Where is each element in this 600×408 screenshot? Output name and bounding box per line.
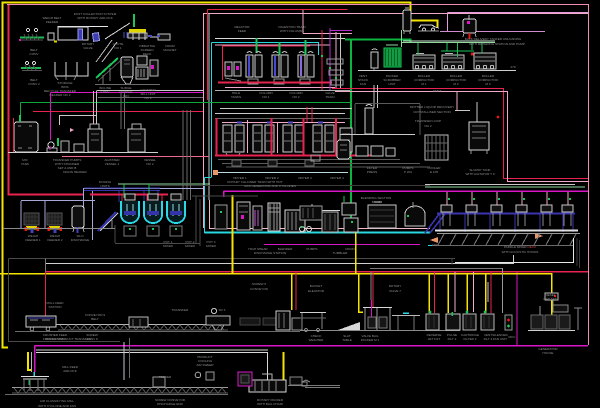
svg-text:VESSEL 1: VESSEL 1 [105,162,120,166]
svg-text:WITH ROTARY AIRLOCK: WITH ROTARY AIRLOCK [77,16,114,20]
svg-text:WEIGHER: WEIGHER [309,338,325,342]
svg-text:TABLE: TABLE [342,338,352,342]
svg-text:NO 1: NO 1 [262,95,270,99]
svg-text:FILTER 2: FILTER 2 [463,337,476,341]
svg-text:E 105: E 105 [430,170,438,174]
svg-text:VENT: VENT [433,89,441,93]
svg-text:TRANSFER LOOP: TRANSFER LOOP [415,119,441,123]
svg-text:NO 2: NO 2 [144,96,152,100]
svg-text:BULK DELIVERY TANKER UNLOADING: BULK DELIVERY TANKER UNLOADING [465,37,522,41]
svg-text:DISCHARGE: DISCHARGE [71,238,89,242]
svg-text:FILT 4: FILT 4 [484,337,493,341]
svg-text:MAGNET: MAGNET [163,48,176,52]
svg-text:WITH COLUMNS: WITH COLUMNS [280,29,304,33]
svg-text:DISCHARGE END: DISCHARGE END [157,402,184,406]
svg-text:FAN: FAN [360,82,366,86]
svg-text:NO 1: NO 1 [114,46,122,50]
svg-text:TRANSFER: TRANSFER [172,308,189,312]
svg-text:ROLL STAND: ROLL STAND [45,337,65,341]
svg-text:FEED: FEED [238,29,247,33]
svg-text:AIRLOCK: AIRLOCK [63,369,78,373]
svg-text:NO 2: NO 2 [146,162,154,166]
svg-text:BUCKET: BUCKET [310,284,323,288]
svg-text:WITH BAG CHAIR: WITH BAG CHAIR [257,402,284,406]
svg-text:WITH METERING STATION AND PUMP: WITH METERING STATION AND PUMP [469,42,525,46]
svg-text:GEN SET: GEN SET [543,297,557,301]
svg-text:TRAIN: TRAIN [325,95,334,99]
svg-text:VALVE 7: VALVE 7 [389,289,401,293]
svg-text:BINS: BINS [61,85,68,89]
svg-text:PACKER M 1: PACKER M 1 [361,338,380,342]
svg-text:MIXER: MIXER [185,244,196,248]
svg-text:BIN: BIN [123,94,128,98]
svg-text:MIXER: MIXER [206,244,217,248]
svg-text:DISCHARGE STATION: DISCHARGE STATION [254,251,286,255]
svg-text:FILT 2: FILT 2 [448,337,457,341]
svg-text:P 201: P 201 [404,170,412,174]
svg-text:BAY 2: BAY 2 [372,200,381,204]
svg-text:NO 2: NO 2 [292,95,300,99]
svg-text:HEADER NO 2: HEADER NO 2 [50,93,71,97]
svg-text:FAN UNIT: FAN UNIT [493,337,507,341]
svg-text:CONVEYOR: CONVEYOR [250,287,268,291]
svg-text:WITH CYCLONE AND FAN: WITH CYCLONE AND FAN [38,404,76,408]
svg-text:TANKS: TANKS [231,95,241,99]
svg-text:DRYER 4: DRYER 4 [330,176,344,180]
svg-text:WITH ACOUSTIC HOODS: WITH ACOUSTIC HOODS [502,250,539,254]
svg-text:HOUSE: HOUSE [542,351,553,355]
svg-text:WITH AGITATOR T 9: WITH AGITATOR T 9 [465,172,494,176]
svg-text:270: 270 [510,65,515,69]
svg-text:DECK: DECK [143,52,153,56]
svg-text:MCC: MCC [508,335,516,339]
svg-text:PUMPS: PUMPS [306,247,317,251]
svg-text:AIR SWEEP: AIR SWEEP [196,363,213,367]
svg-text:FEEDER 2: FEEDER 2 [47,238,62,242]
svg-text:FEEDER: FEEDER [46,20,59,24]
svg-text:FEEDER 1: FEEDER 1 [25,238,40,242]
svg-text:M 1: M 1 [421,82,426,86]
svg-text:SCREW 5: SCREW 5 [252,282,266,286]
svg-text:DRYER 3: DRYER 3 [298,176,312,180]
svg-text:CONV 8: CONV 8 [86,337,98,341]
svg-text:STATION: STATION [49,305,62,309]
svg-text:CRYSTALLISER SECTION: CRYSTALLISER SECTION [413,110,451,114]
svg-text:PADDLE MIXER DECK: PADDLE MIXER DECK [504,245,537,249]
svg-text:PRESS: PRESS [367,170,378,174]
svg-text:BELT: BELT [91,317,99,321]
svg-text:UNITS: UNITS [100,184,109,188]
svg-text:M 2: M 2 [453,82,458,86]
svg-text:NO 2: NO 2 [424,124,432,128]
svg-text:DRAIN HEADER: DRAIN HEADER [63,170,87,174]
svg-text:CONV 2: CONV 2 [28,82,40,86]
svg-text:VALVE: VALVE [83,46,93,50]
svg-text:GAS GENERATOR AND CYCLONES: GAS GENERATOR AND CYCLONES [244,184,296,188]
svg-text:FEEDER: FEEDER [159,375,172,379]
svg-text:TUMBLER: TUMBLER [333,251,349,255]
svg-text:CONV: CONV [101,90,111,94]
svg-text:UNIT: UNIT [388,82,395,86]
svg-text:ELEVATOR: ELEVATOR [308,289,325,293]
svg-text:M 3: M 3 [485,82,490,86]
svg-text:ROTARY: ROTARY [389,284,402,288]
svg-text:JET FILT: JET FILT [428,337,441,341]
svg-text:AIR CLASSIFYING MILL: AIR CLASSIFYING MILL [40,399,74,403]
svg-text:MIXER: MIXER [163,244,174,248]
svg-text:MIX: MIX [432,243,438,247]
svg-text:RV 3: RV 3 [219,308,226,312]
svg-text:TANK: TANK [21,162,30,166]
svg-text:MOTHER LIQUOR RECOVERY: MOTHER LIQUOR RECOVERY [410,105,454,109]
svg-text:CONV: CONV [30,52,40,56]
